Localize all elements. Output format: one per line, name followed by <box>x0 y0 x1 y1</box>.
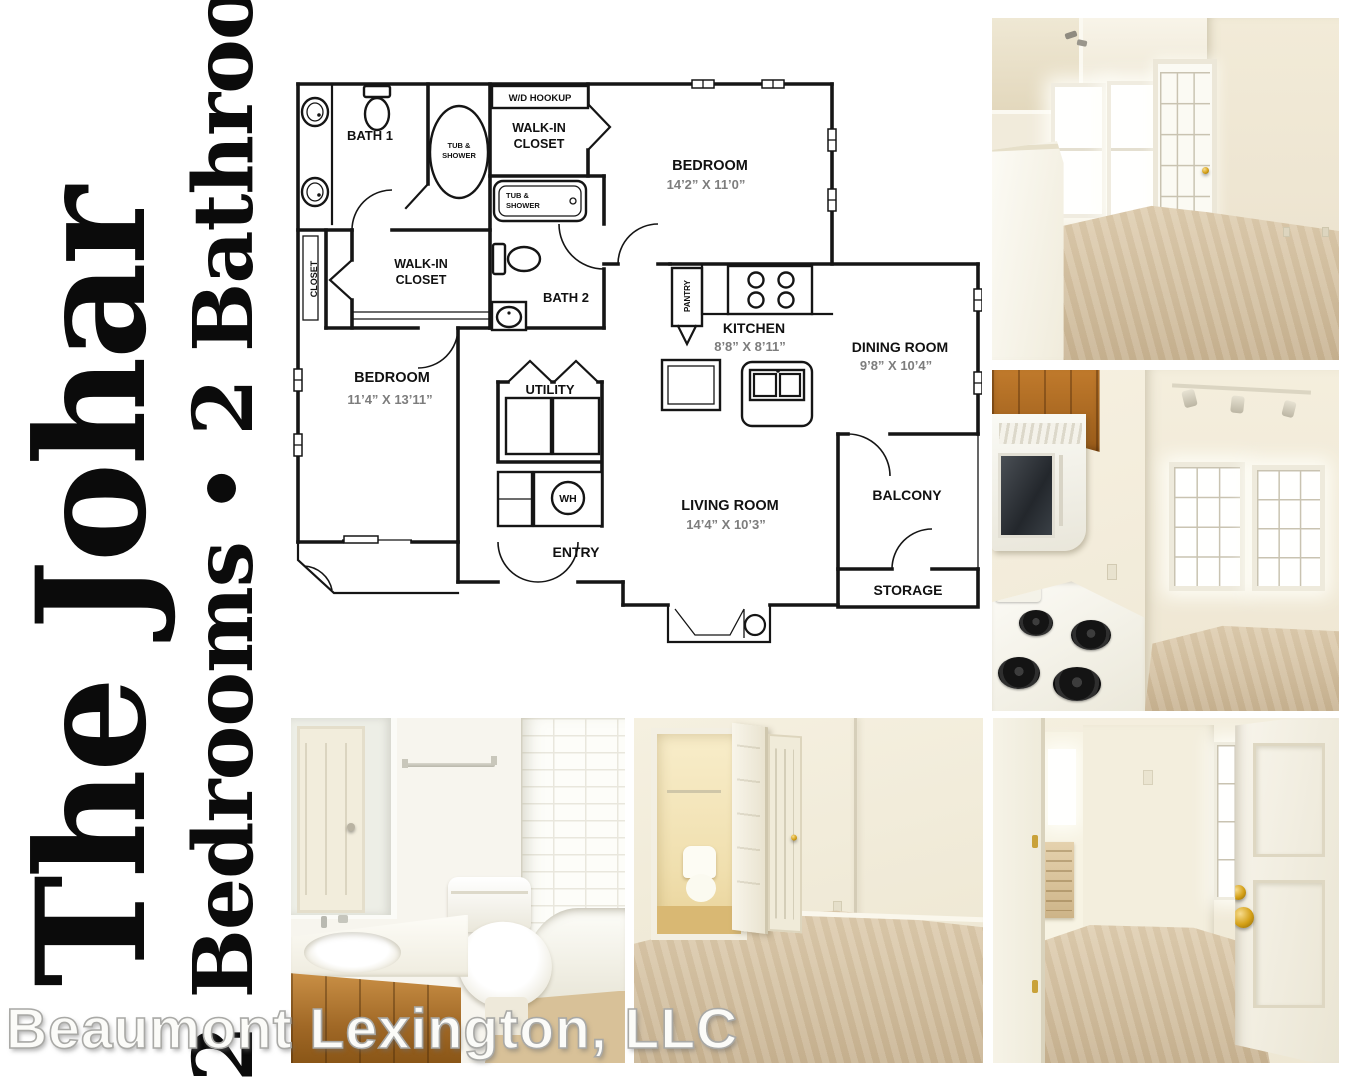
far-window <box>1048 749 1076 825</box>
label-living-dims: 14’4” X 10’3” <box>686 517 766 532</box>
label-kitchen: KITCHEN <box>723 320 785 336</box>
wall-corner <box>854 718 857 925</box>
label-wic1-l2: CLOSET <box>514 137 565 151</box>
track-light <box>1231 395 1246 413</box>
light-switch <box>1143 770 1153 785</box>
counter-edge <box>992 144 1065 152</box>
label-bedroom1-dims: 14’2” X 11’0” <box>667 177 746 192</box>
floor-plan: BATH 1 TUB & SHOWER W/D HOOKUP WALK-IN C… <box>292 74 982 650</box>
towel-bar-bracket <box>402 759 408 768</box>
label-bedroom2: BEDROOM <box>354 370 430 386</box>
label-closet: CLOSET <box>309 260 319 297</box>
label-wic2-l2: CLOSET <box>396 273 447 287</box>
shower-tile-wall <box>521 718 625 939</box>
wall-outlet <box>1107 564 1117 580</box>
property-title: The Johar <box>6 189 178 987</box>
white-panel-door <box>1235 718 1339 1063</box>
toilet-bowl <box>686 874 716 902</box>
door-panel <box>1253 880 1325 1008</box>
label-dining: DINING ROOM <box>852 339 948 355</box>
bathroom-floor <box>657 906 741 934</box>
label-tub1-l1: TUB & <box>448 141 471 150</box>
label-kitchen-dims: 8’8” X 8’11” <box>714 339 786 354</box>
towel-bar-bracket <box>491 756 497 765</box>
label-utility: UTILITY <box>525 382 574 397</box>
mirror-reflected-door <box>297 726 365 913</box>
flyer-page: The Johar 2 Bedrooms • 2 Bathrooms <box>0 0 1352 1080</box>
property-subtitle: 2 Bedrooms • 2 Bathrooms <box>176 8 272 1080</box>
window <box>1169 462 1245 591</box>
microwave <box>992 414 1086 550</box>
window-sash <box>1111 148 1158 151</box>
dresser-drawers <box>1046 850 1072 911</box>
wall-outlet <box>1283 227 1290 237</box>
label-balcony: BALCONY <box>872 487 942 503</box>
microwave-vent <box>999 423 1081 445</box>
faucet-handle <box>338 915 348 923</box>
label-storage: STORAGE <box>874 582 943 598</box>
breakfast-bar-half-wall <box>992 141 1075 360</box>
closet-knob <box>791 834 797 840</box>
label-pantry: PANTRY <box>683 279 692 312</box>
label-dining-dims: 9’8” X 10’4” <box>860 358 932 373</box>
label-bedroom2-dims: 11’4” X 13’11” <box>347 392 432 407</box>
door-panels <box>737 744 760 912</box>
door-panel <box>1253 743 1325 857</box>
room-labels: BATH 1 TUB & SHOWER W/D HOOKUP WALK-IN C… <box>309 93 948 598</box>
label-tub2-l1: TUB & <box>506 191 529 200</box>
microwave-handle <box>1059 455 1063 526</box>
sink-basin <box>304 932 401 973</box>
mirror <box>291 718 397 919</box>
company-name: Beaumont Lexington, LLC <box>6 996 738 1062</box>
left-door-frame <box>993 718 1045 1063</box>
stove-burner <box>1053 667 1101 701</box>
label-tub1-l2: SHOWER <box>442 151 476 160</box>
bay-window <box>668 605 770 642</box>
window <box>1252 465 1324 591</box>
door-knob <box>1233 907 1254 928</box>
door-hinge <box>1032 980 1038 993</box>
photo-living-dining-room <box>992 18 1339 360</box>
label-bath2: BATH 2 <box>543 290 589 305</box>
label-wd-hookup: W/D HOOKUP <box>509 93 572 104</box>
label-entry: ENTRY <box>553 544 601 560</box>
door-swings <box>304 190 658 590</box>
door-hinge <box>1032 835 1038 848</box>
tank-lid-line <box>451 891 528 894</box>
center-wall <box>1083 725 1214 953</box>
stove-burner <box>1019 610 1053 636</box>
stove-burner <box>1071 620 1111 650</box>
open-door-leaf <box>732 723 768 934</box>
label-bedroom1: BEDROOM <box>672 158 748 174</box>
photo-entry-hallway <box>993 718 1339 1063</box>
window-sash <box>1055 148 1102 151</box>
photo-kitchen <box>992 370 1339 711</box>
towel-bar <box>405 763 495 767</box>
label-bath1: BATH 1 <box>347 128 393 143</box>
towel-bar <box>667 790 721 793</box>
label-wic2-l1: WALK-IN <box>394 257 447 271</box>
wall-outlet <box>1322 227 1329 237</box>
label-living: LIVING ROOM <box>681 498 778 514</box>
label-wh: WH <box>559 493 577 505</box>
faucet <box>321 916 327 928</box>
label-wic1-l1: WALK-IN <box>512 121 565 135</box>
stove-burner <box>998 657 1040 689</box>
microwave-window <box>998 453 1056 538</box>
closet-door <box>768 734 802 934</box>
dresser <box>1043 842 1074 918</box>
door-panel-lines <box>305 743 357 895</box>
label-tub2-l2: SHOWER <box>506 201 540 210</box>
